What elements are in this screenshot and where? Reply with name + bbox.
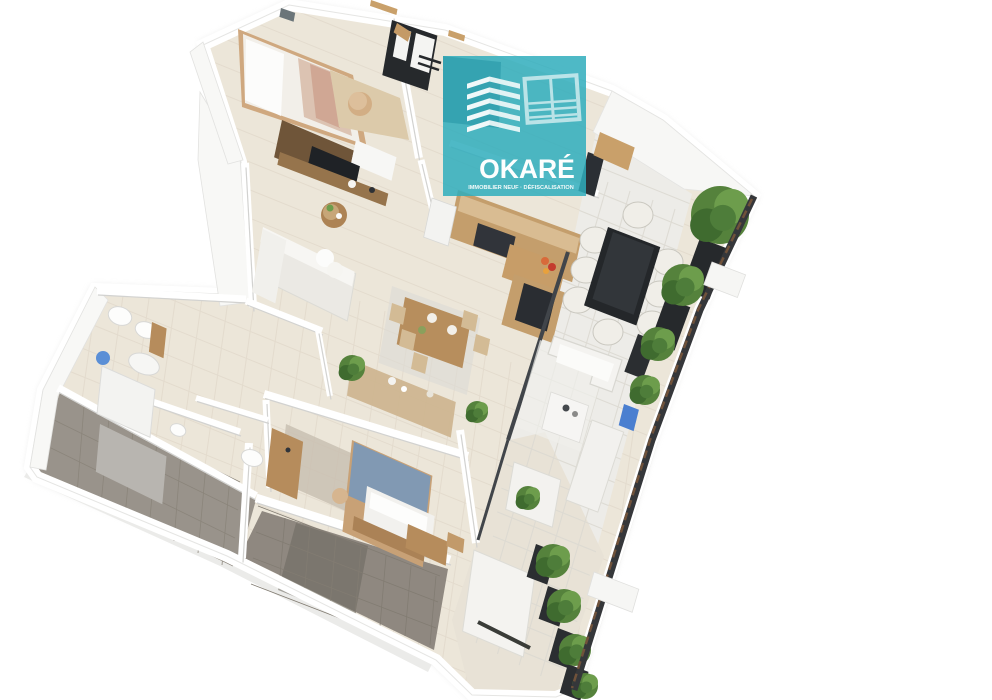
svg-text:IMMOBILIER NEUF · DÉFISCALISAT: IMMOBILIER NEUF · DÉFISCALISATION	[468, 183, 574, 191]
svg-text:OKARÉ: OKARÉ	[479, 154, 575, 184]
